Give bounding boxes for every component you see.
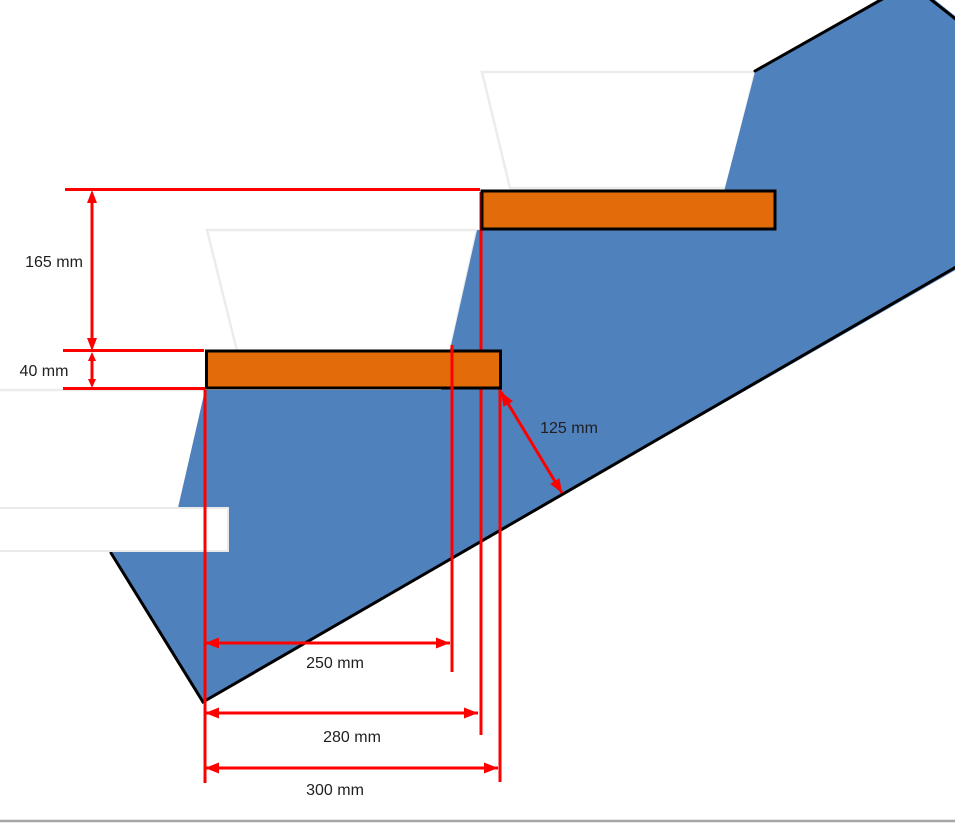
ghost-tread-white	[0, 508, 228, 551]
arrow-thickness-down	[88, 379, 96, 388]
arrow-300-right	[484, 763, 498, 774]
ghost-step-outline-upper	[482, 72, 755, 188]
dim-label-125: 125 mm	[540, 420, 598, 437]
stair-diagram-canvas: 165 mm 40 mm 250 mm 280 mm 300 mm 125 mm	[0, 0, 955, 827]
arrow-300-left	[205, 763, 219, 774]
arrow-250-right	[436, 638, 450, 649]
dim-label-going: 250 mm	[306, 655, 364, 672]
dim-label-tread-thickness: 40 mm	[20, 363, 69, 380]
dim-label-tread-depth: 300 mm	[306, 782, 364, 799]
tread-lower	[207, 351, 501, 388]
ghost-step-outline-middle	[207, 230, 477, 351]
arrow-rise-up	[87, 190, 97, 203]
arrow-thickness-up	[88, 352, 96, 361]
dim-label-run-280: 280 mm	[323, 729, 381, 746]
ghost-step-outline-lower	[0, 390, 207, 511]
arrow-280-right	[464, 708, 478, 719]
dim-label-rise: 165 mm	[25, 254, 83, 271]
arrow-280-left	[205, 708, 219, 719]
tread-upper	[482, 191, 775, 229]
